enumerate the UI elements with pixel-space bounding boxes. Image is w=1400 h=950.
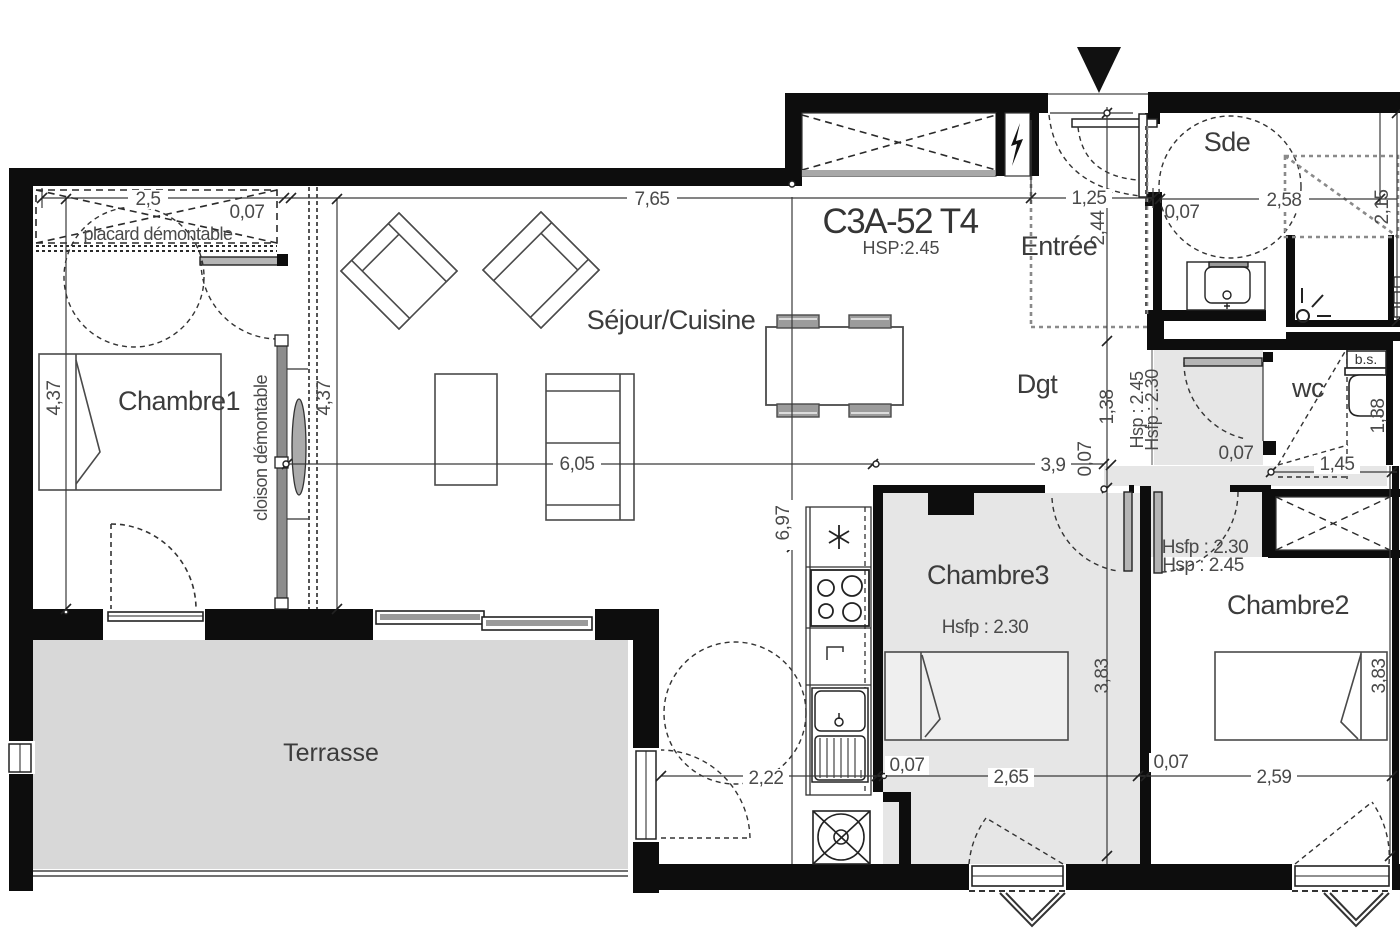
svg-text:wc: wc: [1291, 373, 1324, 403]
svg-text:Dgt: Dgt: [1017, 369, 1059, 399]
svg-text:0,07: 0,07: [1165, 202, 1200, 223]
svg-text:Entrée: Entrée: [1021, 231, 1098, 261]
svg-text:placard démontable: placard démontable: [83, 224, 233, 244]
svg-text:b.s.: b.s.: [1355, 351, 1378, 367]
svg-text:0,07: 0,07: [1075, 442, 1096, 477]
svg-text:0,07: 0,07: [890, 755, 925, 776]
svg-text:2,5: 2,5: [136, 189, 161, 210]
svg-text:3,83: 3,83: [1092, 659, 1113, 694]
svg-text:Sde: Sde: [1204, 127, 1251, 157]
svg-text:3,9: 3,9: [1041, 455, 1066, 476]
svg-text:Chambre3: Chambre3: [927, 560, 1049, 590]
svg-text:2,15: 2,15: [1372, 190, 1393, 225]
svg-text:C3A-52 T4: C3A-52 T4: [822, 202, 978, 241]
svg-text:Hsfp : 2.30: Hsfp : 2.30: [942, 617, 1028, 638]
svg-text:cloison démontable: cloison démontable: [251, 374, 271, 521]
svg-text:2,65: 2,65: [994, 767, 1029, 788]
svg-text:4,37: 4,37: [314, 381, 335, 416]
svg-text:0,07: 0,07: [230, 202, 265, 223]
svg-text:Chambre1: Chambre1: [118, 386, 240, 416]
svg-text:1,38: 1,38: [1097, 390, 1118, 425]
svg-text:0,07: 0,07: [1154, 752, 1189, 773]
svg-text:Terrasse: Terrasse: [283, 739, 379, 767]
svg-text:1,38: 1,38: [1368, 399, 1389, 434]
svg-text:Séjour/Cuisine: Séjour/Cuisine: [587, 305, 756, 335]
svg-text:HSP:2.45: HSP:2.45: [862, 238, 939, 258]
svg-text:7,65: 7,65: [635, 189, 670, 210]
svg-text:4,37: 4,37: [44, 381, 65, 416]
svg-text:2,22: 2,22: [749, 768, 784, 789]
svg-text:3,83: 3,83: [1369, 659, 1390, 694]
svg-text:Hsp : 2.45: Hsp : 2.45: [1162, 555, 1244, 576]
svg-text:6,05: 6,05: [560, 454, 595, 475]
svg-text:6,97: 6,97: [773, 506, 794, 541]
svg-text:Chambre2: Chambre2: [1227, 590, 1349, 620]
svg-text:0,07: 0,07: [1219, 443, 1254, 464]
svg-text:Hsfp : 2.30: Hsfp : 2.30: [1142, 369, 1162, 451]
svg-text:1,25: 1,25: [1072, 188, 1107, 209]
svg-text:2,59: 2,59: [1257, 767, 1292, 788]
svg-text:1,45: 1,45: [1320, 454, 1355, 475]
svg-text:2,58: 2,58: [1267, 190, 1302, 211]
